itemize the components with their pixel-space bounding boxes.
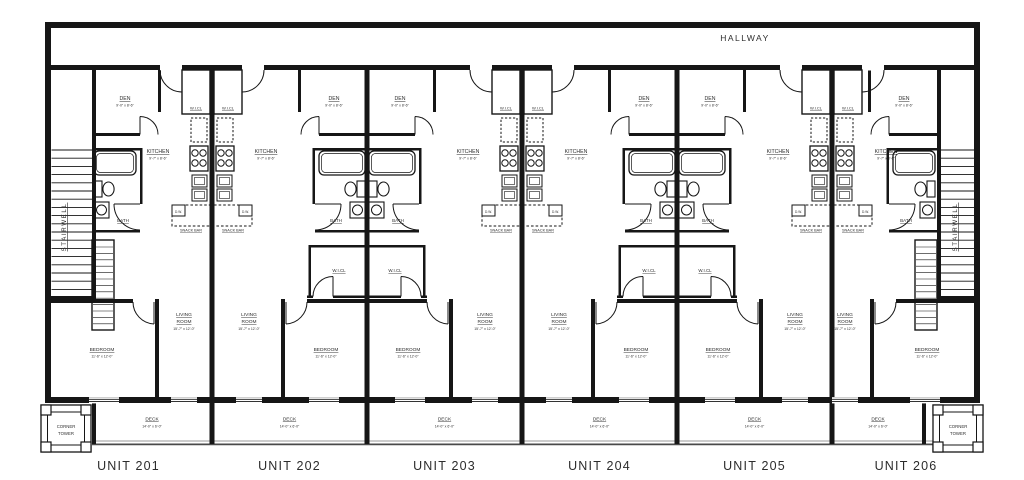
deck-door-gap [171,397,197,403]
refrigerator [527,118,543,142]
snack-bar-label: SNACK BAR [180,229,202,233]
sink-basin [220,192,230,199]
sink-basin [815,178,825,185]
unit-name-label: UNIT 204 [568,459,631,473]
bedroom-door-arc [875,302,896,324]
kitchen-dim: 9'-7" x 8'-6" [149,157,167,161]
deck-dim: 14'-0" x 6'-0" [745,425,765,429]
burner [536,160,542,166]
refrigerator [217,118,233,142]
kitchen-label: KITCHEN [147,149,170,155]
bath-wall [315,148,367,151]
den-wall [629,133,677,136]
deck-label: DECK [871,417,885,423]
burner [846,160,852,166]
closet-wall [619,245,677,248]
wicl-label: W.I.CL [642,268,656,273]
hallway-wall [51,65,974,70]
bedroom-wall [870,299,874,403]
burner [812,150,818,156]
den-wall [743,68,746,112]
sink-basin [220,178,230,185]
toilet-bowl [103,182,114,196]
living-room-label: ROOM [838,319,853,325]
bath-wall [367,230,419,233]
burner [502,160,508,166]
bath-label: BATH [900,218,912,223]
bath-door-arc [703,204,729,230]
burner [200,150,206,156]
bathtub [893,151,935,175]
bath-label: BATH [702,218,714,223]
den-wall [677,133,725,136]
stairwell-right [937,68,980,300]
bathtub-inner [97,154,134,173]
refrigerator [811,118,827,142]
closet-wall [619,245,622,298]
unit-202: DEN9'-0" x 8'-6"W.I.CLD.W.SNACK BARKITCH… [214,65,367,474]
wicl-label: W.I.CL [388,268,402,273]
entry-door-arc [552,70,574,92]
bedroom-door-arc [133,302,154,324]
bath-wall [677,148,729,151]
den-door-arc [725,117,743,135]
entry-door-arc [242,70,264,92]
bedroom-label: BEDROOM [314,347,339,353]
bedroom-label: BEDROOM [624,347,649,353]
bath-wall [625,230,677,233]
bathtub-inner [896,154,933,173]
closet-wall [423,245,426,298]
entry-door-gap [862,65,884,71]
den-door-arc [140,117,158,135]
bedroom-window-gap [89,397,119,403]
floor-plan-drawing: DEN9'-0" x 8'-6"W.I.CLD.W.SNACK BARKITCH… [0,0,1024,480]
sink-basin [530,192,540,199]
sink-basin [505,192,515,199]
kitchen-dim: 9'-7" x 8'-6" [459,157,477,161]
stairwell-left-label: STAIRWELL [61,203,68,252]
sink-basin [530,178,540,185]
entry-door-gap [470,65,492,71]
burner [510,160,516,166]
bedroom-wall [617,299,677,303]
bathtub [319,151,365,175]
den-label: DEN [639,96,650,102]
bedroom-door-arc [427,302,448,324]
bedroom-window-gap [309,397,339,403]
kitchen-label: KITCHEN [565,149,588,155]
tower-corner [81,405,91,415]
kitchen-dim: 9'-7" x 8'-6" [257,157,275,161]
bath-wall [729,148,732,204]
den-dim: 9'-0" x 8'-6" [116,104,134,108]
burner [226,150,232,156]
closet-wall [367,245,425,248]
stove [500,146,518,171]
living-room-label: LIVING [477,312,493,318]
unit-name-label: UNIT 201 [97,459,160,473]
bathtub [94,151,136,175]
bathtub-inner [682,154,723,173]
sink-basin [840,192,850,199]
den-dim: 9'-0" x 8'-6" [701,104,719,108]
closet-wall [333,296,367,299]
unit-divider-wall [675,65,680,403]
outer-wall-right [974,22,980,403]
closet-wall [367,296,401,299]
toilet-bowl [655,182,666,196]
bedroom-door-arc [286,302,307,324]
bath-wall [677,230,729,233]
dishwasher-label: D.W. [175,210,182,214]
sink-basin [195,192,205,199]
unit-205: DEN9'-0" x 8'-6"W.I.CLD.W.SNACK BARKITCH… [677,65,830,474]
bedroom-window-gap [705,397,735,403]
entry-door-arc [780,70,802,92]
deck-door-gap [236,397,262,403]
entry-door-arc [470,70,492,92]
unit-divider-wall [830,65,835,403]
burner [502,150,508,156]
bedroom-wall [307,299,367,303]
burner [192,160,198,166]
stairwell-right-label: STAIRWELL [952,203,959,252]
toilet-tank [369,181,377,197]
wicl-label: W.I.CL [842,106,855,111]
bathtub [629,151,675,175]
den-label: DEN [329,96,340,102]
snack-bar-label: SNACK BAR [222,229,244,233]
tower-corner [933,405,943,415]
bedroom-wall [449,299,453,403]
entry-door-gap [160,65,182,71]
unit-name-label: UNIT 205 [723,459,786,473]
corner-tower-right-label: CORNER [949,424,968,429]
den-door-arc [415,117,433,135]
sink-bowl [682,205,692,215]
tower-corner [973,405,983,415]
burner [536,150,542,156]
deck-door-gap [832,397,858,403]
bedroom-dim: 11'-6" x 12'-0" [91,355,113,359]
living-room-label: LIVING [787,312,803,318]
wicl-label: W.I.CL [332,268,346,273]
entry-door-arc [862,70,884,92]
bedroom-label: BEDROOM [915,347,940,353]
stove [216,146,234,171]
tower-corner [973,442,983,452]
living-room-dim: 15'-7" x 12'-0" [173,327,195,331]
deck-label: DECK [593,417,607,423]
bedroom-wall [591,299,595,403]
deck-divider [830,403,835,444]
wicl-label: W.I.CL [810,106,823,111]
living-room-dim: 15'-7" x 12'-0" [238,327,260,331]
floor-plan-sheet: DEN9'-0" x 8'-6"W.I.CLD.W.SNACK BARKITCH… [0,0,1024,480]
sink-bowl [923,205,933,215]
burner [846,150,852,156]
bedroom-door-arc [596,302,617,324]
bedroom-dim: 11'-6" x 12'-0" [707,355,729,359]
bedroom-dim: 11'-6" x 12'-0" [397,355,419,359]
entry-door-gap [780,65,802,71]
bath-wall [92,230,140,233]
bedroom-door-arc [737,302,758,324]
stove [836,146,854,171]
den-dim: 9'-0" x 8'-6" [895,104,913,108]
den-label: DEN [120,96,131,102]
bathtub-inner [632,154,673,173]
den-dim: 9'-0" x 8'-6" [391,104,409,108]
sink-bowl [97,205,107,215]
living-room-label: ROOM [552,319,567,325]
den-wall [298,68,301,112]
living-room-dim: 15'-7" x 12'-0" [548,327,570,331]
toilet-bowl [378,182,389,196]
closet-wall [309,245,367,248]
unit-divider-wall [520,65,525,403]
bedroom-dim: 11'-6" x 12'-0" [625,355,647,359]
toilet-tank [927,181,935,197]
unit-name-label: UNIT 203 [413,459,476,473]
refrigerator [501,118,517,142]
toilet-bowl [688,182,699,196]
bath-wall [623,148,626,204]
plan-geometry: DEN9'-0" x 8'-6"W.I.CLD.W.SNACK BARKITCH… [41,22,983,473]
bedroom-wall [45,299,92,303]
den-label: DEN [395,96,406,102]
snack-bar-label: SNACK BAR [490,229,512,233]
den-wall [433,68,436,112]
burner [510,150,516,156]
bathtub-inner [372,154,413,173]
kitchen-label: KITCHEN [457,149,480,155]
dishwasher-label: D.W. [485,210,492,214]
unit-name-label: UNIT 202 [258,459,321,473]
toilet-bowl [345,182,356,196]
bedroom-window-gap [395,397,425,403]
deck-divider [675,403,680,444]
bathtub [679,151,725,175]
den-wall [92,133,140,136]
tower-corner [81,442,91,452]
den-label: DEN [705,96,716,102]
closet-wall [643,296,677,299]
burner [528,160,534,166]
deck-dim: 14'-0" x 6'-0" [435,425,455,429]
unit-204: DEN9'-0" x 8'-6"W.I.CLD.W.SNACK BARKITCH… [524,65,677,474]
bath-wall [419,148,422,204]
deck-door-gap [782,397,808,403]
bath-wall [92,148,140,151]
sink-bowl [663,205,673,215]
closet-wall [307,296,313,299]
dishwasher-label: D.W. [795,210,802,214]
bathtub [369,151,415,175]
closet-door-arc [623,277,643,297]
outer-wall-left [45,22,51,403]
den-wall [889,133,937,136]
corner-tower-left-label: CORNER [57,424,76,429]
living-room-label: LIVING [241,312,257,318]
wicl-label: W.I.CL [698,268,712,273]
closet-door-arc [711,277,731,297]
bedroom-wall [896,299,937,303]
bath-door-arc [889,204,915,230]
bath-wall [367,148,419,151]
bedroom-wall [937,299,974,303]
refrigerator [191,118,207,142]
deck-divider [520,403,525,444]
bedroom-dim: 11'-6" x 12'-0" [315,355,337,359]
den-wall [319,133,367,136]
deck-dim: 14'-0" x 6'-0" [590,425,610,429]
stairwell-left [45,68,96,300]
dishwasher-label: D.W. [862,210,869,214]
closet-wall [421,296,427,299]
bedroom-wall [92,299,133,303]
living-room-label: ROOM [177,319,192,325]
toilet-bowl [915,182,926,196]
wicl-label: W.I.CL [222,106,235,111]
toilet-tank [357,181,365,197]
bathtub-inner [322,154,363,173]
sink-basin [815,192,825,199]
stove [810,146,828,171]
living-room-label: ROOM [788,319,803,325]
sink-basin [840,178,850,185]
stove [190,146,208,171]
bath-wall [313,148,316,204]
entry-door-gap [242,65,264,71]
bedroom-window-gap [910,397,940,403]
entry-door-gap [552,65,574,71]
sink-bowl [372,205,382,215]
den-wall [367,133,415,136]
bath-label: BATH [640,218,652,223]
den-dim: 9'-0" x 8'-6" [325,104,343,108]
closet-wall [677,296,711,299]
wicl-label: W.I.CL [532,106,545,111]
burner [218,160,224,166]
burner [200,160,206,166]
kitchen-dim: 9'-7" x 8'-6" [567,157,585,161]
tower-corner [41,405,51,415]
den-door-arc [301,117,319,135]
bath-door-arc [625,204,651,230]
hallway-label: HALLWAY [720,33,770,43]
wicl-label: W.I.CL [190,106,203,111]
bedroom-wall [759,299,763,403]
den-door-arc [611,117,629,135]
closet-wall [617,296,623,299]
stove [526,146,544,171]
deck-door-gap [546,397,572,403]
wicl-label: W.I.CL [500,106,513,111]
bath-label: BATH [330,218,342,223]
bath-wall [889,230,937,233]
kitchen-label: KITCHEN [255,149,278,155]
burner [820,160,826,166]
unit-divider-wall [365,65,370,403]
burner [192,150,198,156]
closet-door-arc [401,277,421,297]
snack-bar-label: SNACK BAR [800,229,822,233]
unit-divider-wall [210,65,215,403]
living-room-dim: 15'-7" x 12'-0" [834,327,856,331]
deck-divider [365,403,370,444]
snack-bar-label: SNACK BAR [842,229,864,233]
living-room-label: LIVING [176,312,192,318]
unit-203: DEN9'-0" x 8'-6"W.I.CLD.W.SNACK BARKITCH… [367,65,520,474]
closet-door-arc [313,277,333,297]
den-label: DEN [899,96,910,102]
deck-door-gap [472,397,498,403]
bedroom-dim: 11'-6" x 12'-0" [916,355,938,359]
tower-corner [933,442,943,452]
bedroom-wall [367,299,427,303]
deck-end-wall [922,403,926,444]
bedroom-window-gap [619,397,649,403]
outer-wall-top [45,22,980,28]
sink-basin [195,178,205,185]
bedroom-label: BEDROOM [706,347,731,353]
living-room-label: ROOM [242,319,257,325]
bath-label: BATH [117,218,129,223]
deck-label: DECK [283,417,297,423]
bath-door-arc [393,204,419,230]
deck-label: DECK [438,417,452,423]
bath-wall [889,148,937,151]
corner-tower-left-label: TOWER [58,431,74,436]
burner [838,150,844,156]
refrigerator [837,118,853,142]
burner [226,160,232,166]
bedroom-wall [281,299,285,403]
kitchen-label: KITCHEN [767,149,790,155]
closet-wall [731,296,737,299]
burner [218,150,224,156]
dishwasher-label: D.W. [552,210,559,214]
toilet-tank [667,181,675,197]
living-room-label: LIVING [837,312,853,318]
snack-bar-label: SNACK BAR [532,229,554,233]
sink-basin [505,178,515,185]
unit-name-label: UNIT 206 [875,459,938,473]
bath-label: BATH [392,218,404,223]
deck-band [92,403,933,444]
living-room-dim: 15'-7" x 12'-0" [474,327,496,331]
toilet-tank [679,181,687,197]
dishwasher-label: D.W. [242,210,249,214]
bath-wall [625,148,677,151]
burner [838,160,844,166]
burner [528,150,534,156]
bath-wall [315,230,367,233]
burner [812,160,818,166]
closet-wall [677,245,735,248]
bedroom-wall [677,299,737,303]
den-door-arc [871,117,889,135]
bedroom-wall [155,299,159,403]
closet-wall [733,245,736,298]
deck-end-wall [92,403,96,444]
den-wall [608,68,611,112]
deck-dim: 14'-0" x 6'-0" [142,425,162,429]
bath-wall [140,148,143,204]
sink-bowl [353,205,363,215]
